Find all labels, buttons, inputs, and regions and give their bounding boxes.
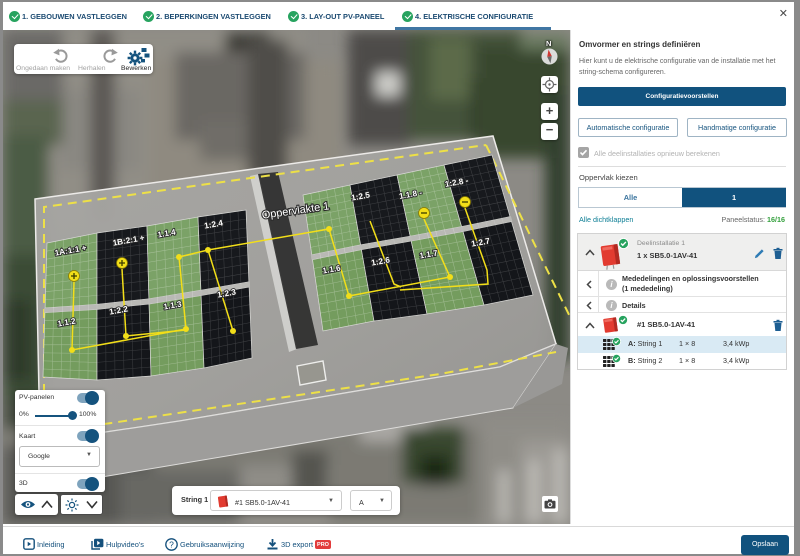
svg-text:?: ?: [169, 539, 174, 549]
